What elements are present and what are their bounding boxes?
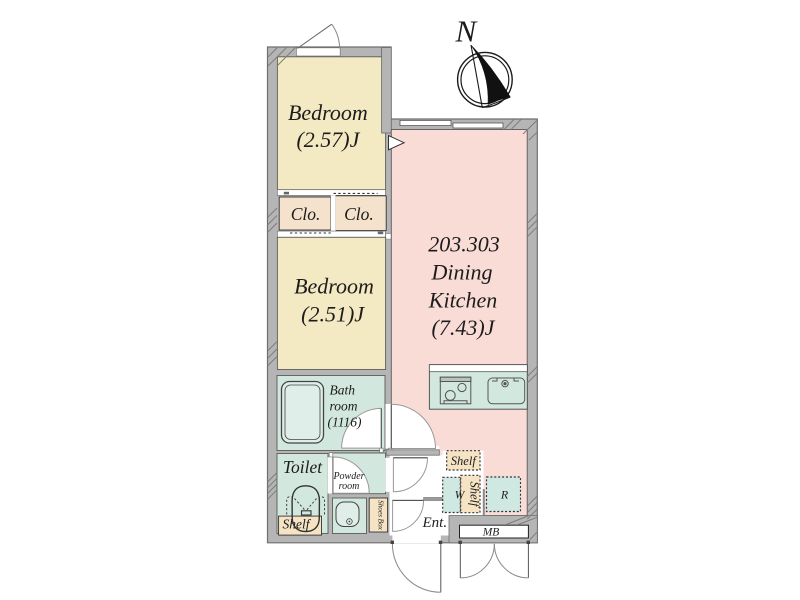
svg-text:(2.51)J: (2.51)J: [301, 302, 365, 327]
svg-text:Dining: Dining: [430, 260, 492, 285]
svg-text:MB: MB: [482, 527, 500, 539]
svg-text:(1116): (1116): [328, 415, 362, 430]
svg-text:N: N: [455, 14, 479, 49]
svg-text:Shoes Box: Shoes Box: [376, 500, 384, 531]
svg-text:Clo.: Clo.: [344, 204, 374, 224]
svg-text:R: R: [500, 488, 509, 502]
svg-text:Kitchen: Kitchen: [428, 288, 497, 313]
svg-text:room: room: [330, 399, 358, 414]
svg-text:(2.57)J: (2.57)J: [296, 127, 360, 152]
svg-text:Ent.: Ent.: [422, 515, 448, 531]
svg-text:Bedroom: Bedroom: [294, 274, 374, 299]
svg-text:room: room: [339, 481, 360, 492]
svg-text:Clo.: Clo.: [291, 204, 321, 224]
svg-text:Shelf: Shelf: [451, 454, 478, 468]
svg-text:203.303: 203.303: [428, 232, 500, 257]
svg-text:Bedroom: Bedroom: [288, 100, 368, 125]
svg-text:Toilet: Toilet: [283, 457, 323, 477]
svg-text:(7.43)J: (7.43)J: [432, 315, 496, 340]
svg-text:Shelf: Shelf: [467, 482, 481, 509]
svg-text:Bath: Bath: [330, 383, 356, 398]
svg-text:W: W: [455, 490, 466, 502]
